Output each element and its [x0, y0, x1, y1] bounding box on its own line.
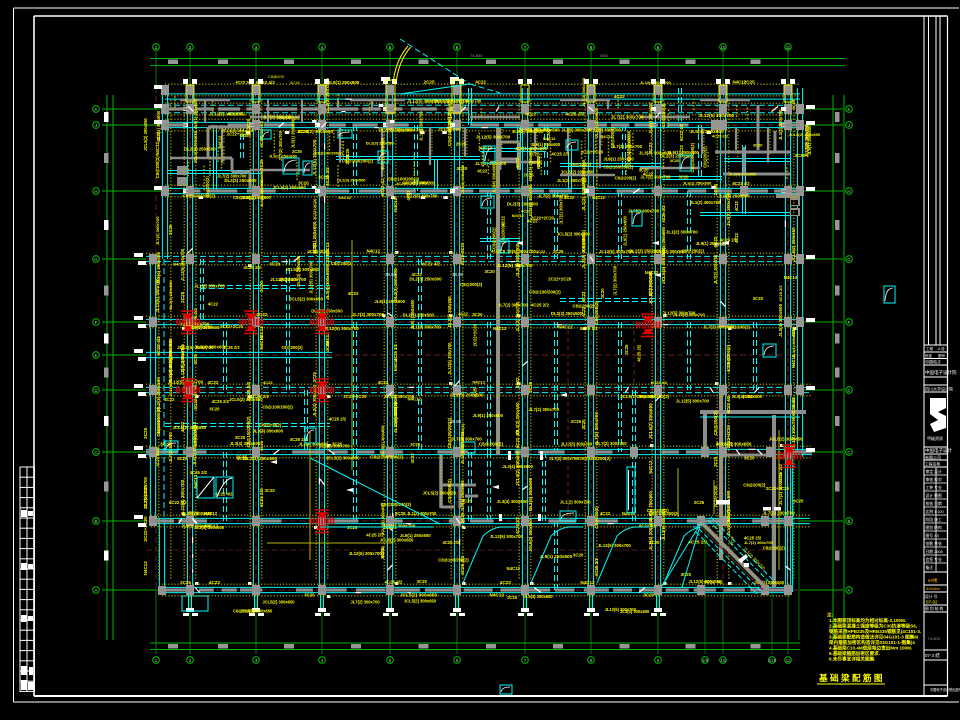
svg-text:JL12(5) 300x700: JL12(5) 300x700 — [324, 326, 359, 331]
svg-text:图别 结构: 图别 结构 — [926, 525, 942, 530]
svg-text:38.80: 38.80 — [452, 272, 464, 277]
svg-text:F: F — [95, 320, 98, 325]
svg-text:JL12(5) 300x700: JL12(5) 300x700 — [407, 99, 441, 104]
svg-text:6C22 4/2: 6C22 4/2 — [651, 380, 668, 385]
svg-text:中国电子设计院: 中国电子设计院 — [925, 369, 957, 376]
svg-text:JL9(1) 250x600: JL9(1) 250x600 — [193, 99, 198, 129]
svg-text:JL1(2) 300x700: JL1(2) 300x700 — [666, 229, 698, 234]
svg-text:B: B — [95, 519, 98, 524]
svg-text:JL3(4) 300x600: JL3(4) 300x600 — [492, 163, 497, 193]
svg-text:4C25 2/2: 4C25 2/2 — [566, 112, 585, 117]
svg-text:C8@100/200(2): C8@100/200(2) — [636, 394, 669, 399]
svg-text:JL9(1) 250x600: JL9(1) 250x600 — [181, 524, 212, 529]
svg-text:DL2(3) 250x500: DL2(3) 250x500 — [156, 377, 162, 412]
svg-text:JL9(1) 250x600: JL9(1) 250x600 — [683, 181, 712, 186]
svg-text:JL9(1) 250x600: JL9(1) 250x600 — [189, 325, 220, 330]
svg-text:G: G — [847, 257, 851, 262]
svg-text:C8@200(2): C8@200(2) — [703, 146, 708, 168]
svg-text:DL2(3) 250x500: DL2(3) 250x500 — [450, 393, 484, 398]
svg-text:3C20: 3C20 — [269, 262, 280, 267]
svg-text:DL2(3) 250x500: DL2(3) 250x500 — [409, 277, 442, 282]
svg-text:4C25 2/2: 4C25 2/2 — [661, 205, 666, 223]
svg-text:D: D — [847, 388, 850, 393]
svg-text:JL9(1) 250x600: JL9(1) 250x600 — [460, 480, 465, 512]
svg-text:JL7(2) 300x700: JL7(2) 300x700 — [744, 540, 774, 545]
svg-text:2C25: 2C25 — [744, 80, 756, 85]
svg-text:JL12(5) 300x700: JL12(5) 300x700 — [598, 543, 632, 548]
svg-text:JL3(4) 300x600: JL3(4) 300x600 — [325, 267, 330, 300]
svg-text:4C22: 4C22 — [256, 312, 268, 318]
svg-text:JL3(4) 300x600: JL3(4) 300x600 — [778, 303, 783, 337]
svg-text:JL12(5) 300x700: JL12(5) 300x700 — [270, 277, 307, 283]
svg-text:07-3 结: 07-3 结 — [925, 652, 940, 659]
svg-text:4C22: 4C22 — [312, 242, 318, 254]
svg-text:JCL5(2) 300x650: JCL5(2) 300x650 — [289, 297, 323, 302]
svg-text:3C20: 3C20 — [484, 269, 495, 274]
svg-text:4C25 2/2: 4C25 2/2 — [778, 285, 783, 302]
svg-text:JL12(5) 300x700: JL12(5) 300x700 — [309, 261, 314, 294]
svg-text:设计 号: 设计 号 — [925, 594, 938, 599]
svg-text:2C25: 2C25 — [168, 224, 173, 235]
svg-text:C8@200(2): C8@200(2) — [647, 508, 670, 513]
svg-text:3C20: 3C20 — [753, 142, 763, 147]
svg-text:JL1(2) 300x700: JL1(2) 300x700 — [515, 301, 520, 331]
svg-text:2C25: 2C25 — [571, 419, 582, 424]
svg-text:4C22: 4C22 — [525, 112, 536, 117]
svg-text:2C25: 2C25 — [395, 511, 406, 516]
svg-text:四川大学设计院: 四川大学设计院 — [925, 386, 953, 392]
svg-text:JCL5(2) 300x650: JCL5(2) 300x650 — [557, 231, 591, 236]
svg-text:2C25: 2C25 — [553, 249, 564, 254]
svg-text:C8@200(2): C8@200(2) — [726, 344, 731, 367]
svg-text:F: F — [848, 320, 851, 325]
svg-text:38.80: 38.80 — [385, 272, 397, 277]
svg-text:JL1(2) 300x700: JL1(2) 300x700 — [319, 444, 350, 449]
svg-text:N4C12: N4C12 — [592, 195, 605, 200]
svg-text:C8@100/200(2): C8@100/200(2) — [262, 405, 293, 410]
svg-text:N4C12: N4C12 — [204, 511, 218, 516]
svg-text:4C22: 4C22 — [527, 219, 538, 224]
svg-text:N4C12: N4C12 — [600, 134, 613, 139]
svg-text:JL7(2) 300x700: JL7(2) 300x700 — [155, 216, 160, 246]
svg-text:JL7(2) 300x700: JL7(2) 300x700 — [451, 437, 482, 442]
svg-text:4C22: 4C22 — [458, 312, 468, 317]
svg-text:3C20: 3C20 — [318, 175, 329, 180]
svg-text:JL7(2) 300x700: JL7(2) 300x700 — [549, 456, 579, 461]
svg-text:6C22 4/2: 6C22 4/2 — [169, 500, 187, 505]
svg-text:3C20: 3C20 — [581, 419, 586, 429]
svg-text:JL1(2) 300x700: JL1(2) 300x700 — [512, 129, 544, 134]
svg-text:中国电子: 中国电子 — [925, 359, 941, 365]
svg-text:C8@200(2): C8@200(2) — [281, 345, 303, 350]
svg-text:4C22: 4C22 — [475, 80, 486, 85]
svg-text:JL7(2) 300x700: JL7(2) 300x700 — [596, 441, 627, 446]
svg-text:4C22: 4C22 — [500, 580, 512, 586]
svg-text:JCL5(2) 300x650: JCL5(2) 300x650 — [423, 491, 457, 496]
svg-text:6C22 4/2: 6C22 4/2 — [156, 336, 161, 355]
svg-text:4C22: 4C22 — [209, 580, 221, 586]
svg-text:4C22: 4C22 — [515, 377, 520, 388]
svg-text:4C22: 4C22 — [614, 94, 625, 99]
svg-text:JL7(2) 300x700: JL7(2) 300x700 — [217, 174, 247, 179]
svg-text:3C20: 3C20 — [643, 593, 654, 598]
svg-text:DL2(3) 250x500: DL2(3) 250x500 — [528, 477, 533, 510]
svg-text:图号: 图号 — [938, 353, 946, 358]
svg-text:2C22+2C20: 2C22+2C20 — [726, 425, 731, 449]
svg-text:6C22 4/2: 6C22 4/2 — [156, 417, 161, 434]
svg-text:JL12(5) 300x700: JL12(5) 300x700 — [676, 399, 710, 404]
svg-text:3C20: 3C20 — [410, 442, 420, 447]
svg-text:2C25: 2C25 — [694, 500, 705, 505]
svg-text:JL9(1) 250x600: JL9(1) 250x600 — [374, 299, 405, 304]
svg-text:JL7(2) 300x700: JL7(2) 300x700 — [180, 343, 185, 372]
svg-text:JL7(2) 300x700: JL7(2) 300x700 — [352, 312, 385, 317]
svg-text:JL1(2) 300x700: JL1(2) 300x700 — [690, 200, 721, 205]
svg-text:JL3(4) 300x600: JL3(4) 300x600 — [194, 345, 227, 350]
svg-text:4C22: 4C22 — [378, 380, 389, 385]
svg-text:JL3(4) 300x600: JL3(4) 300x600 — [502, 464, 533, 469]
svg-text:JL7(2) 300x700: JL7(2) 300x700 — [611, 115, 644, 120]
svg-text:JL9(1) 250x600: JL9(1) 250x600 — [472, 413, 503, 418]
svg-text:批准: 批准 — [925, 353, 933, 358]
svg-text:4C22: 4C22 — [263, 380, 273, 385]
svg-text:4C22: 4C22 — [348, 291, 359, 296]
svg-text:JL3(4) 300x600: JL3(4) 300x600 — [497, 499, 528, 504]
svg-text:C8@100/200(2): C8@100/200(2) — [578, 456, 611, 461]
svg-text:J: J — [95, 123, 97, 128]
svg-text:JL1(2) 300x700: JL1(2) 300x700 — [560, 500, 591, 505]
svg-text:4C22: 4C22 — [298, 129, 309, 134]
svg-text:JL7(2) 300x700: JL7(2) 300x700 — [263, 115, 294, 120]
svg-text:4C25 2/2: 4C25 2/2 — [580, 326, 599, 331]
svg-text:JL9(1) 250x600: JL9(1) 250x600 — [623, 215, 628, 245]
svg-text:JCL5(2) 300x650: JCL5(2) 300x650 — [789, 132, 821, 137]
svg-text:2C22+2C20: 2C22+2C20 — [143, 516, 149, 542]
svg-text:2C25: 2C25 — [325, 340, 330, 351]
svg-text:07-02: 07-02 — [926, 600, 938, 605]
svg-text:JL12(5) 300x700: JL12(5) 300x700 — [490, 534, 524, 539]
svg-text:4C22: 4C22 — [477, 169, 488, 174]
svg-text:JL3(4) 300x600: JL3(4) 300x600 — [729, 172, 756, 177]
svg-text:C8@200(2): C8@200(2) — [479, 442, 504, 447]
svg-text:4C25 2/2: 4C25 2/2 — [594, 558, 599, 577]
svg-text:6C22 4/2: 6C22 4/2 — [726, 395, 731, 413]
svg-text:4C22: 4C22 — [207, 380, 219, 385]
svg-text:比例 1:100: 比例 1:100 — [926, 509, 944, 514]
svg-text:DL2(3) 250x500: DL2(3) 250x500 — [507, 202, 539, 207]
svg-text:1/10: 1/10 — [768, 658, 777, 663]
svg-text:3C20: 3C20 — [235, 435, 246, 440]
svg-text:2C25: 2C25 — [529, 151, 540, 156]
svg-text:2C25: 2C25 — [259, 159, 264, 170]
svg-text:3C20: 3C20 — [639, 168, 650, 173]
svg-text:N4C12: N4C12 — [512, 213, 525, 218]
svg-text:DL2(3) 250x500: DL2(3) 250x500 — [447, 296, 452, 328]
svg-text:4C25 2/2: 4C25 2/2 — [551, 152, 569, 157]
svg-text:2C25: 2C25 — [456, 142, 467, 147]
svg-text:N4C12: N4C12 — [558, 325, 573, 331]
svg-text:JL12(5) 300x700: JL12(5) 300x700 — [180, 248, 185, 281]
svg-text:DL2(3) 250x500: DL2(3) 250x500 — [337, 177, 365, 182]
svg-text:4C22: 4C22 — [734, 200, 739, 211]
svg-text:C8@200(2): C8@200(2) — [572, 304, 595, 309]
svg-text:2C22+2C20: 2C22+2C20 — [473, 323, 478, 346]
svg-text:2C25: 2C25 — [507, 595, 518, 600]
svg-text:C8@200(2): C8@200(2) — [743, 483, 766, 488]
svg-text:JCL5(2) 300x650: JCL5(2) 300x650 — [791, 227, 796, 262]
svg-text:2C25: 2C25 — [143, 427, 148, 439]
svg-text:基 础 梁 配 筋 图: 基 础 梁 配 筋 图 — [818, 672, 883, 683]
svg-text:JL3(4) 300x600: JL3(4) 300x600 — [594, 107, 599, 138]
svg-text:3C20: 3C20 — [472, 312, 483, 317]
svg-text:C8@200(2): C8@200(2) — [233, 195, 256, 200]
svg-text:JL7(2) 300x700: JL7(2) 300x700 — [383, 524, 416, 529]
svg-text:JL9(1) 250x600: JL9(1) 250x600 — [648, 491, 653, 522]
svg-text:3C20: 3C20 — [573, 553, 584, 558]
svg-text:2C22+2C20: 2C22+2C20 — [227, 132, 250, 137]
svg-text:会签 专业: 会签 专业 — [926, 557, 942, 562]
svg-text:4C22: 4C22 — [536, 249, 546, 254]
svg-text:JL7(2) 300x700: JL7(2) 300x700 — [529, 407, 560, 412]
svg-text:C8@200(2): C8@200(2) — [763, 545, 786, 550]
svg-text:4C22: 4C22 — [208, 301, 219, 306]
svg-text:C8@200(2): C8@200(2) — [155, 156, 160, 178]
svg-text:C: C — [94, 450, 97, 455]
svg-text:2C25: 2C25 — [180, 580, 191, 585]
svg-text:张数 共张: 张数 共张 — [926, 541, 942, 546]
svg-text:JCL5(2) 300x650: JCL5(2) 300x650 — [769, 437, 803, 442]
svg-text:C8@200: C8@200 — [268, 74, 285, 79]
svg-text:JL12(5) 300x700: JL12(5) 300x700 — [349, 551, 383, 556]
svg-text:3C20: 3C20 — [793, 499, 804, 504]
svg-text:C8@200(2): C8@200(2) — [259, 423, 282, 428]
svg-text:4C25 2/2: 4C25 2/2 — [190, 470, 208, 475]
svg-text:工种 专业: 工种 专业 — [926, 485, 942, 490]
svg-text:JCL5(2) 300x650: JCL5(2) 300x650 — [380, 425, 385, 457]
svg-text:JL7(2) 300x700: JL7(2) 300x700 — [351, 600, 381, 605]
svg-text:N4C12: N4C12 — [543, 136, 556, 141]
svg-text:日期 2008: 日期 2008 — [926, 549, 943, 554]
svg-text:JL1(2) 300x700: JL1(2) 300x700 — [561, 128, 591, 133]
svg-text:3C20: 3C20 — [744, 456, 755, 461]
svg-text:2C22+2C20: 2C22+2C20 — [343, 394, 367, 399]
svg-text:C8@200(2): C8@200(2) — [713, 411, 719, 436]
svg-text:JL9(1) 250x600: JL9(1) 250x600 — [328, 80, 360, 85]
svg-text:JL7(2) 300x700: JL7(2) 300x700 — [168, 432, 173, 463]
svg-text:3C20: 3C20 — [177, 456, 188, 461]
svg-text:JL12(5) 300x700: JL12(5) 300x700 — [447, 342, 452, 375]
svg-text:C8@100/200(2): C8@100/200(2) — [370, 455, 403, 460]
svg-text:JCL5(2) 300x650: JCL5(2) 300x650 — [285, 267, 319, 272]
svg-text:中国电子设计院出图专用章: 中国电子设计院出图专用章 — [930, 687, 960, 692]
svg-text:A: A — [95, 588, 98, 593]
svg-text:4C25 2/2: 4C25 2/2 — [329, 416, 347, 421]
svg-text:有限公司: 有限公司 — [925, 454, 941, 460]
svg-text:甲级资质: 甲级资质 — [927, 435, 943, 441]
svg-text:JL12(5) 300x700: JL12(5) 300x700 — [180, 479, 186, 516]
svg-text:JL1(2) 300x700: JL1(2) 300x700 — [778, 109, 783, 140]
svg-text:JL12(5) 300x700: JL12(5) 300x700 — [155, 278, 160, 313]
svg-text:图号 XX: 图号 XX — [926, 533, 940, 538]
svg-text:DL2(3) 250x500: DL2(3) 250x500 — [243, 456, 277, 461]
svg-text:JL12(5) 300x700: JL12(5) 300x700 — [688, 579, 722, 584]
svg-text:JCL5(2) 300x650: JCL5(2) 300x650 — [326, 455, 360, 460]
svg-text:C8@200(2): C8@200(2) — [331, 261, 354, 266]
svg-text:JL3(4) 300x600: JL3(4) 300x600 — [523, 594, 553, 599]
svg-text:C8@100/200(2): C8@100/200(2) — [342, 158, 374, 163]
svg-text:C8@200(2): C8@200(2) — [492, 227, 497, 249]
svg-text:38.80: 38.80 — [450, 419, 462, 424]
svg-text:2C25: 2C25 — [713, 456, 718, 467]
svg-text:DL2(3) 250x500: DL2(3) 250x500 — [184, 147, 216, 152]
svg-text:3C20: 3C20 — [457, 166, 468, 171]
svg-text:工程: 工程 — [926, 346, 934, 351]
svg-text:3C20: 3C20 — [600, 288, 605, 299]
svg-text:N4C12: N4C12 — [155, 142, 160, 156]
svg-text:4C22: 4C22 — [600, 511, 611, 516]
svg-text:图 别 结 构: 图 别 结 构 — [925, 606, 944, 611]
svg-text:3C20: 3C20 — [795, 153, 806, 158]
svg-text:4C22: 4C22 — [581, 291, 586, 302]
svg-text:4C25: 4C25 — [730, 536, 735, 546]
svg-text:6C22 4/2: 6C22 4/2 — [732, 181, 750, 186]
svg-text:2C22+2C20: 2C22+2C20 — [312, 198, 317, 220]
svg-text:D: D — [94, 388, 97, 393]
svg-text:DL2(3) 250x500: DL2(3) 250x500 — [515, 402, 520, 434]
svg-text:审定 设计: 审定 设计 — [926, 469, 942, 474]
svg-text:JCL5(2) 300x650: JCL5(2) 300x650 — [716, 442, 752, 447]
svg-text:4C22: 4C22 — [411, 272, 422, 277]
svg-text:C8@100/200(2): C8@100/200(2) — [402, 181, 430, 185]
svg-text:H: H — [94, 189, 97, 194]
svg-text:JL9(1) 250x600: JL9(1) 250x600 — [648, 102, 653, 134]
svg-text:JL7(2) 300x700: JL7(2) 300x700 — [168, 350, 173, 383]
svg-text:DL2(3) 250x500: DL2(3) 250x500 — [551, 311, 583, 316]
svg-text:JCL5(2) 300x650: JCL5(2) 300x650 — [804, 123, 809, 156]
svg-text:N4C12: N4C12 — [506, 566, 520, 571]
svg-text:N4C12: N4C12 — [218, 135, 223, 149]
svg-text:4C25 2/2: 4C25 2/2 — [366, 532, 384, 537]
svg-text:1/9: 1/9 — [702, 658, 709, 663]
svg-text:N4C12: N4C12 — [408, 396, 422, 401]
svg-text:JL3(4) 300x600: JL3(4) 300x600 — [581, 235, 587, 269]
svg-text:JL9(1) 250x600: JL9(1) 250x600 — [718, 194, 750, 199]
svg-text:C8@200(2): C8@200(2) — [594, 506, 599, 529]
svg-text:4C25 2/2: 4C25 2/2 — [637, 344, 642, 362]
svg-text:K: K — [848, 107, 851, 112]
svg-text:JL3(4) 300x600: JL3(4) 300x600 — [515, 243, 520, 277]
svg-text:JL3(4) 300x600: JL3(4) 300x600 — [230, 441, 261, 446]
svg-text:N4C12: N4C12 — [393, 197, 398, 212]
svg-text:2C22+2C20: 2C22+2C20 — [143, 485, 148, 509]
svg-text:C8@200(2): C8@200(2) — [727, 325, 751, 330]
svg-text:JL12(5) 300x700: JL12(5) 300x700 — [599, 249, 633, 254]
svg-text:4C25 2/2: 4C25 2/2 — [384, 580, 402, 585]
svg-text:4C18: 4C18 — [290, 80, 300, 85]
svg-text:JCL5(2) 300x650: JCL5(2) 300x650 — [173, 425, 207, 430]
svg-text:C8@200(2): C8@200(2) — [682, 249, 705, 254]
svg-text:2C25: 2C25 — [713, 184, 719, 196]
svg-text:2C25: 2C25 — [424, 80, 435, 85]
svg-text:4C25 2/2: 4C25 2/2 — [531, 303, 550, 308]
svg-text:6.未尽事宜详相关图集.: 6.未尽事宜详相关图集. — [829, 656, 875, 663]
svg-text:74-800: 74-800 — [928, 636, 941, 641]
svg-text:3C20: 3C20 — [462, 499, 473, 504]
svg-text:3C20: 3C20 — [417, 579, 428, 584]
svg-text:C: C — [847, 450, 850, 455]
svg-text:4C22: 4C22 — [164, 397, 175, 402]
svg-text:JL3(4) 300x600: JL3(4) 300x600 — [259, 170, 264, 199]
svg-text:3C20: 3C20 — [678, 174, 689, 179]
svg-text:JL12(5) 300x700: JL12(5) 300x700 — [698, 113, 734, 118]
svg-text:DL2(3) 250x500: DL2(3) 250x500 — [726, 490, 731, 524]
svg-text:JCL5(2) 300x650: JCL5(2) 300x650 — [648, 403, 653, 439]
svg-text:4C25 2/2: 4C25 2/2 — [243, 265, 261, 270]
svg-text:3C20: 3C20 — [264, 488, 275, 493]
svg-text:JCL5(2) 300x650: JCL5(2) 300x650 — [380, 537, 414, 542]
svg-text:4000: 4000 — [600, 54, 608, 58]
svg-text:3C20: 3C20 — [753, 296, 764, 301]
svg-text:74-800: 74-800 — [470, 53, 483, 58]
svg-text:JCL5(2) 300x650: JCL5(2) 300x650 — [143, 118, 148, 151]
svg-text:2C25: 2C25 — [180, 291, 186, 303]
svg-text:4C22: 4C22 — [410, 453, 415, 464]
svg-text:DL2(3) 250x500: DL2(3) 250x500 — [366, 140, 395, 145]
svg-text:3C20: 3C20 — [259, 281, 264, 292]
svg-text:JL3(4) 300x600: JL3(4) 300x600 — [732, 394, 763, 399]
svg-text:2C25: 2C25 — [460, 512, 465, 523]
svg-text:N4C12: N4C12 — [493, 326, 507, 331]
svg-text:C8@100/200(2): C8@100/200(2) — [182, 194, 215, 199]
svg-text:C8@200(2): C8@200(2) — [569, 162, 591, 167]
svg-text:2C25: 2C25 — [528, 381, 533, 392]
svg-text:JCL5(2) 300x650: JCL5(2) 300x650 — [273, 185, 307, 190]
svg-text:DL2(3) 250x500: DL2(3) 250x500 — [168, 280, 173, 310]
svg-text:JL9(1) 250x600: JL9(1) 250x600 — [531, 142, 561, 147]
svg-text:4C25 2/2: 4C25 2/2 — [259, 488, 264, 507]
svg-text:2C25: 2C25 — [345, 148, 350, 159]
svg-text:3C20: 3C20 — [670, 158, 680, 163]
svg-text:JL7(2) 300x700: JL7(2) 300x700 — [452, 99, 482, 104]
svg-text:JL1(2) 300x700: JL1(2) 300x700 — [791, 329, 796, 358]
svg-text:JCL5(2) 300x650: JCL5(2) 300x650 — [528, 519, 533, 552]
svg-text:2C25: 2C25 — [791, 398, 796, 408]
svg-text:2C22+2C20: 2C22+2C20 — [460, 242, 465, 265]
svg-text:4C25 2/2: 4C25 2/2 — [212, 399, 230, 404]
svg-text:2C22+2C20: 2C22+2C20 — [438, 126, 460, 131]
svg-text:N4C12: N4C12 — [580, 580, 595, 585]
svg-text:DL2(3) 250x500: DL2(3) 250x500 — [403, 313, 435, 318]
svg-text:2C25: 2C25 — [473, 387, 478, 398]
svg-text:JL12(5) 300x700: JL12(5) 300x700 — [476, 134, 511, 139]
svg-text:K: K — [95, 107, 98, 112]
svg-text:3C20: 3C20 — [304, 593, 315, 598]
svg-text:JL12(5) 300x700: JL12(5) 300x700 — [561, 442, 593, 447]
svg-text:C8@200(2): C8@200(2) — [205, 176, 210, 198]
svg-text:JCL5(2) 300x650: JCL5(2) 300x650 — [262, 600, 295, 605]
svg-text:2C22+2C20: 2C22+2C20 — [581, 150, 604, 155]
svg-text:6C22 4/2: 6C22 4/2 — [422, 262, 441, 267]
svg-text:N4C12: N4C12 — [648, 460, 653, 474]
svg-text:C8@200(2): C8@200(2) — [460, 282, 483, 287]
svg-text:阶段 施工: 阶段 施工 — [926, 517, 942, 522]
svg-text:JL1(2) 300x700: JL1(2) 300x700 — [791, 416, 796, 448]
svg-text:N4C12: N4C12 — [472, 380, 485, 385]
svg-text:DL2(3) 250x500: DL2(3) 250x500 — [660, 154, 693, 159]
svg-text:JCL5(2) 300x650: JCL5(2) 300x650 — [229, 397, 263, 402]
svg-text:4C25 2/2: 4C25 2/2 — [712, 134, 729, 139]
svg-text:C8@200(2): C8@200(2) — [661, 103, 666, 127]
